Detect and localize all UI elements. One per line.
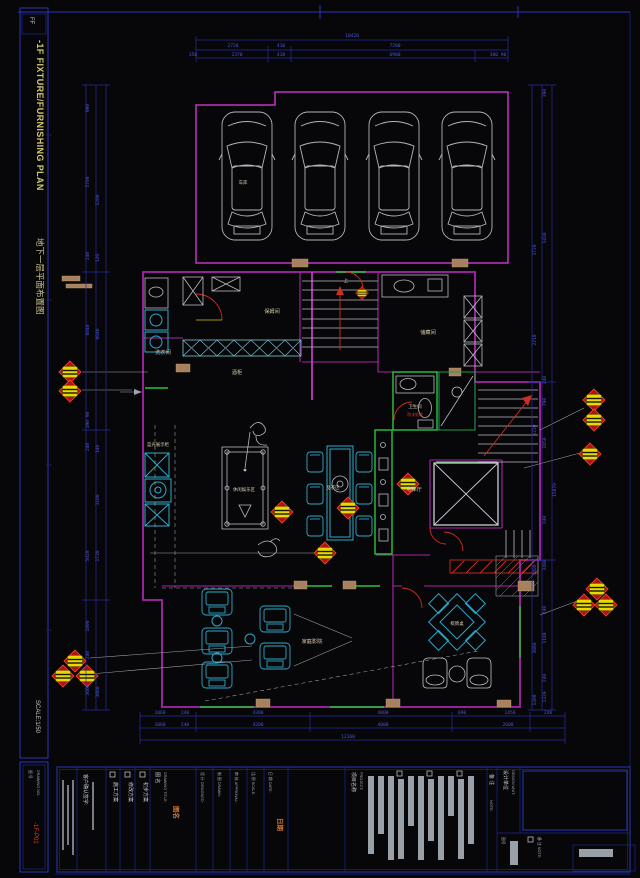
- drawing-no-en: DRAWING NO.: [36, 770, 40, 796]
- dim-text: 5700: [85, 176, 91, 187]
- dim-text: 4200: [252, 722, 263, 728]
- dim-text: 4000: [377, 710, 388, 716]
- dim-text: 1180: [542, 632, 548, 643]
- dim-text: 240: [85, 443, 91, 452]
- dim-text: 1060: [154, 722, 165, 728]
- room-label-tea: 品茶区: [326, 484, 340, 491]
- scheme-preliminary: 初步方案: [142, 782, 149, 802]
- dim-text: 190 90: [85, 411, 91, 428]
- plan-title-cn: 地下一层平面布置图: [35, 238, 45, 315]
- dim-text: 3660: [85, 684, 91, 695]
- dim-text: 240: [181, 710, 190, 716]
- cad-floorplan-sheet: FF -1F FIXTURE/FURNISHING PLAN 地下一层平面布置图…: [0, 0, 640, 878]
- scheme-revised: 修改方案: [127, 782, 134, 802]
- stair-up-label: 上: [344, 277, 349, 283]
- project-en: PROJECT:: [359, 772, 363, 790]
- dim-text: 12160: [341, 734, 355, 740]
- dim-text: 1060: [154, 710, 165, 716]
- dim-text: 240: [542, 516, 548, 525]
- dim-text: 4300: [252, 710, 263, 716]
- dim-text: 240: [544, 710, 553, 716]
- dim-text: 3400: [542, 559, 548, 570]
- dim-text: 990: [85, 104, 91, 113]
- confirm-label: 客户确认签字:: [82, 774, 89, 805]
- dim-text: 4000: [377, 722, 388, 728]
- design-unit-en: DESIGN UNIT:: [511, 770, 515, 795]
- room-label-mahjong: 棋牌桌: [450, 620, 464, 627]
- dim-text: 5230: [532, 424, 538, 435]
- dim-text: 3680: [532, 642, 538, 653]
- scheme-construction: 施工方案: [112, 782, 119, 802]
- dim-text: 1320: [542, 691, 548, 702]
- dim-text: 240: [542, 376, 548, 385]
- dim-text: 240: [542, 606, 548, 615]
- dim-text: 1200: [95, 194, 101, 205]
- dim-text: 410: [277, 43, 286, 49]
- dim-text: 2210: [532, 334, 538, 345]
- dim-text: 390: [542, 89, 548, 98]
- dim-text: 1450: [504, 710, 515, 716]
- date-stamp: 日期: [276, 818, 285, 832]
- room-note-bath: 防水处理: [407, 412, 422, 417]
- dim-text: 240: [85, 252, 91, 261]
- room-label-wine: 酒柜: [232, 368, 242, 376]
- field-scale: 比 例 SCALE:: [251, 772, 256, 795]
- drawing-no-label: 图 号: [28, 770, 33, 779]
- dim-text: 240: [85, 651, 91, 660]
- dim-text: 240: [181, 722, 190, 728]
- dim-text: 5020: [85, 550, 91, 561]
- sheet-code: FF: [28, 17, 34, 25]
- note2-label: 备 注 NOTE:: [537, 837, 542, 858]
- dim-text: 1890: [85, 620, 91, 631]
- dim-text: 1430: [542, 232, 548, 243]
- dim-text: 3100: [95, 494, 101, 505]
- note-label: 备 注: [488, 774, 495, 785]
- note-en: NOTE:: [489, 800, 493, 812]
- drawing-title-stamp: 图名: [172, 806, 181, 819]
- dim-text: 410: [277, 52, 286, 58]
- dim-text: 2600: [502, 722, 513, 728]
- dim-text: 6040: [95, 328, 101, 339]
- dim-text: 3660: [95, 686, 101, 697]
- dim-text: 140: [95, 445, 101, 454]
- field-drawn: 制 图 DRAWN:: [217, 772, 222, 797]
- dim-text: 2720: [227, 43, 238, 49]
- plan-title-en: -1F FIXTURE/FURNISHING PLAN: [35, 40, 45, 191]
- dim-text: 7290: [389, 43, 400, 49]
- room-label-leisure: 休闲娱乐区: [233, 486, 256, 493]
- room-label-cinema: 家庭影院: [302, 637, 324, 645]
- dim-text: 6040: [85, 324, 91, 335]
- room-label-display: 蓝光展示柜: [147, 441, 170, 448]
- drawing-no-cell-label: 图号: [501, 837, 506, 845]
- room-label-laundry: 洗衣间: [155, 348, 171, 356]
- design-unit-label: 设计单位: [502, 770, 509, 790]
- dim-text: 790: [542, 398, 548, 407]
- room-label-storage: 储藏间: [420, 328, 436, 336]
- scale-label: SCALE:1/50: [34, 700, 40, 734]
- drawing-title-en: DRAWING TITLE:: [163, 772, 167, 803]
- dim-text: 1300: [532, 694, 538, 705]
- field-designed: 设 计 DESIGNED:: [200, 772, 205, 803]
- room-label-elevator-hall: 电梯厅: [406, 485, 422, 493]
- dim-text: 120: [95, 254, 101, 263]
- dim-text: 10420: [345, 33, 359, 39]
- dim-text: 1730: [95, 550, 101, 561]
- dim-text: 3720: [532, 244, 538, 255]
- room-label-bath: 卫生间: [408, 403, 421, 410]
- room-label-nanny: 保姆间: [264, 307, 280, 315]
- field-date: 日 期 DATE:: [268, 772, 273, 793]
- dim-text: 15870: [552, 483, 558, 497]
- left-dimensions: 990 5700 1200 240 120 6040 6040 190 90 2…: [82, 85, 110, 710]
- drawing-no-value: -1F-P01: [32, 822, 38, 844]
- dim-text: 690: [458, 710, 467, 716]
- room-label-garage: 车库: [239, 179, 248, 186]
- dim-text: 6900: [389, 52, 400, 58]
- dim-text: 240: [542, 674, 548, 683]
- dim-text: 2370: [231, 52, 242, 58]
- drawing-title-label: 图 名: [154, 772, 161, 783]
- dim-text: 1650: [542, 437, 548, 448]
- project-label: 项目名称: [350, 772, 357, 792]
- field-approval: 审 核 APPROVAL:: [234, 772, 239, 803]
- dim-text: 350: [189, 52, 198, 58]
- dim-text: 3400: [532, 564, 538, 575]
- dim-text: 300 90: [490, 52, 507, 58]
